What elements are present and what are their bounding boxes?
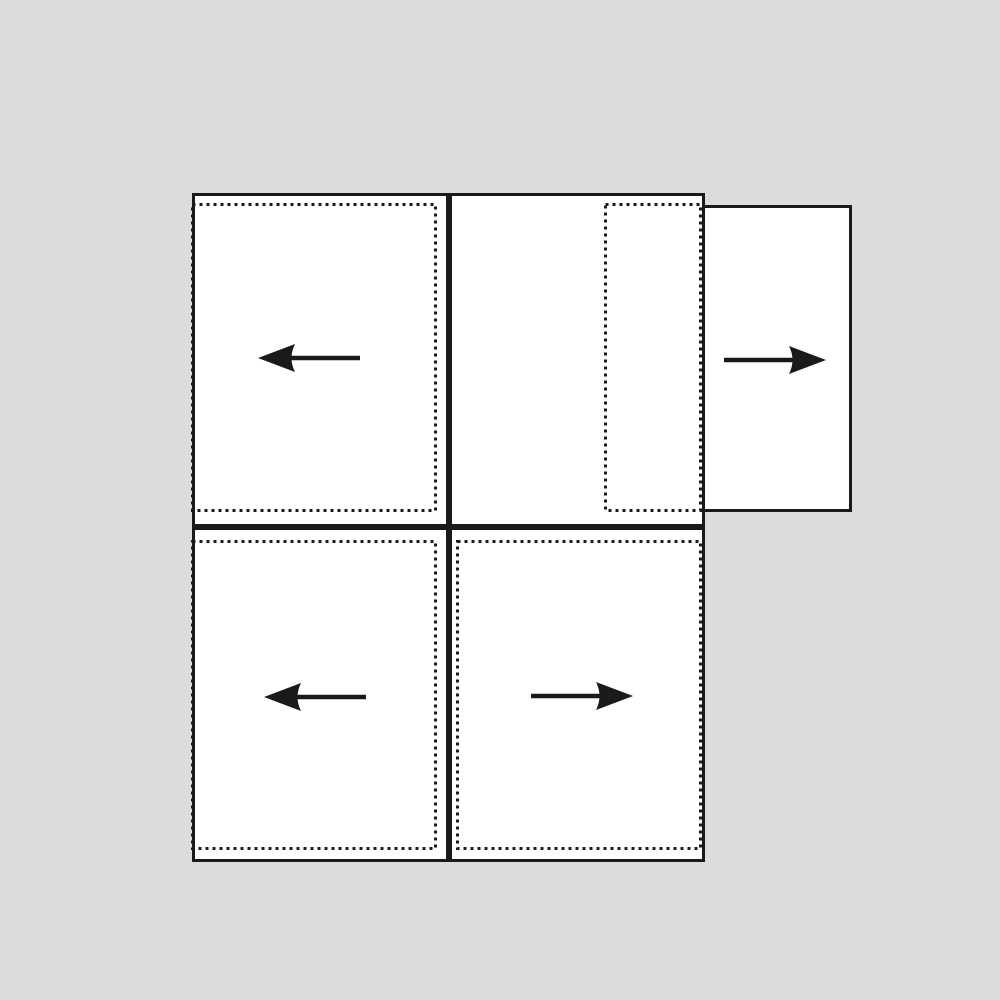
- right-arrow-icon: [530, 681, 634, 711]
- right-arrow-icon: [723, 345, 827, 375]
- left-arrow-icon: [257, 343, 361, 373]
- sliding-panel-top-left: [192, 193, 449, 527]
- left-arrow-icon: [263, 682, 367, 712]
- sliding-panel-top-middle: [449, 193, 705, 527]
- door-opening-dotted-outline: [604, 203, 702, 512]
- sliding-panel-bottom-right: [449, 527, 705, 862]
- diagram-canvas: [0, 0, 1000, 1000]
- sliding-panel-top-right: [702, 205, 852, 512]
- sliding-panel-bottom-left: [192, 527, 449, 862]
